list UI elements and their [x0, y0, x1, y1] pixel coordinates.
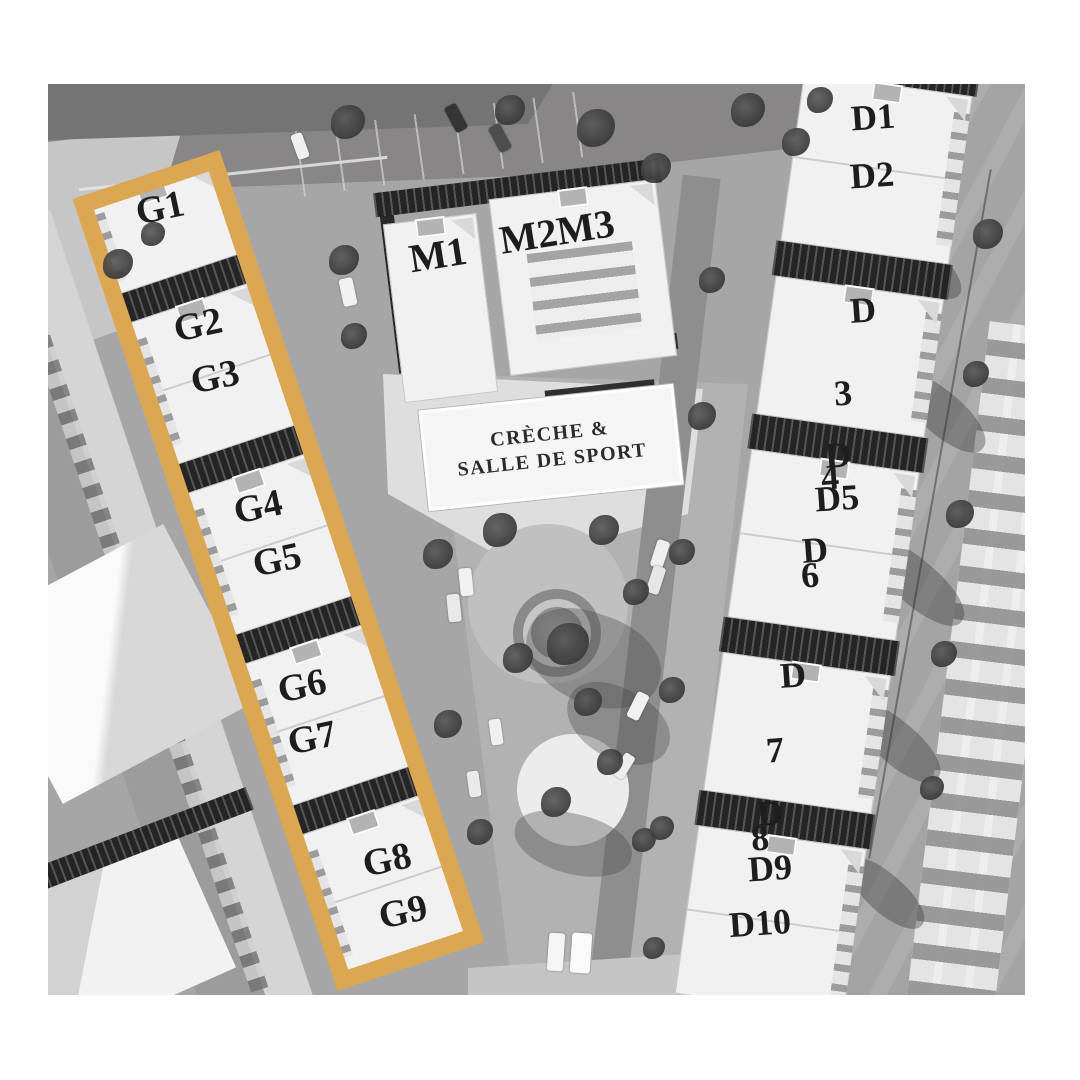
car [458, 567, 474, 596]
unit-label-d2[interactable]: D2 [849, 156, 895, 195]
van [547, 932, 566, 971]
unit-label-d9[interactable]: D9 [747, 849, 793, 888]
tree [699, 267, 725, 293]
car [338, 277, 358, 307]
tree [434, 710, 462, 738]
van [570, 932, 593, 973]
unit-label-g1[interactable]: G1 [132, 184, 187, 231]
car [446, 593, 462, 622]
unit-label-g2[interactable]: G2 [170, 301, 225, 348]
unit-label-d6-line2[interactable]: 6 [800, 556, 820, 593]
tree [329, 245, 359, 275]
unit-label-d1[interactable]: D1 [850, 98, 896, 137]
unit-label-g9[interactable]: G9 [375, 888, 430, 935]
tree [467, 819, 493, 845]
site-plan: CRÈCHE & SALLE DE SPORT [48, 84, 1025, 995]
unit-label-g8[interactable]: G8 [359, 836, 414, 883]
m-buildings-row [377, 159, 683, 421]
unit-label-g5[interactable]: G5 [249, 536, 304, 583]
unit-label-g4[interactable]: G4 [230, 483, 285, 530]
unit-label-d7-line1[interactable]: D [779, 656, 807, 694]
tree [423, 539, 453, 569]
unit-label-d3-line2[interactable]: 3 [833, 374, 853, 411]
tree [341, 323, 367, 349]
unit-label-g3[interactable]: G3 [187, 353, 242, 400]
car [466, 770, 482, 797]
unit-label-d5[interactable]: D5 [814, 479, 860, 518]
unit-label-d10[interactable]: D10 [728, 903, 792, 943]
unit-label-g7[interactable]: G7 [284, 714, 339, 761]
tree [641, 153, 671, 183]
unit-label-d7-line2[interactable]: 7 [765, 731, 785, 768]
unit-label-g6[interactable]: G6 [274, 662, 329, 709]
unit-label-d3-line1[interactable]: D [849, 291, 877, 329]
site-plan-screenshot: CRÈCHE & SALLE DE SPORT [0, 0, 1080, 1080]
unit-label-m1[interactable]: M1 [406, 231, 469, 280]
